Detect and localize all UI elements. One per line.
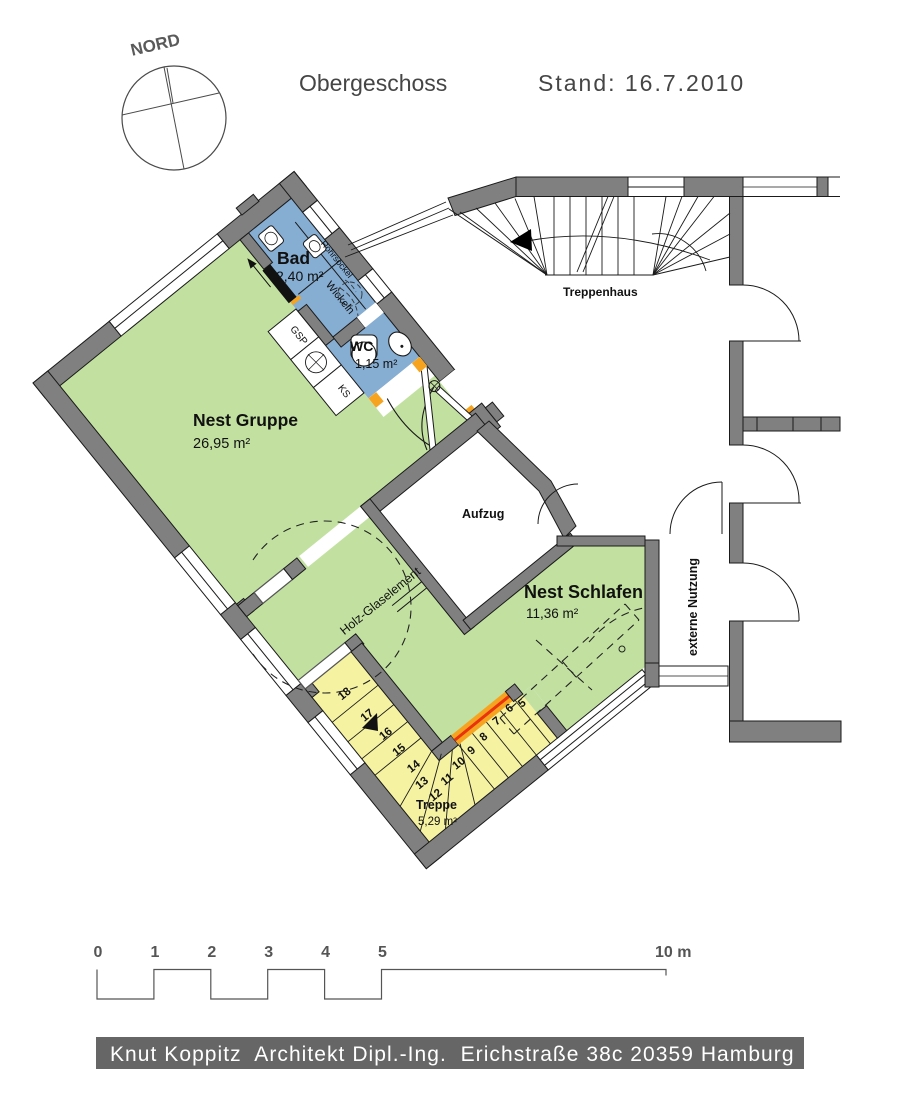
svg-text:Nest Schlafen: Nest Schlafen <box>524 582 643 602</box>
svg-text:Nest Gruppe: Nest Gruppe <box>193 410 298 430</box>
svg-text:10 m: 10 m <box>655 944 691 961</box>
svg-text:Stand: 16.7.2010: Stand: 16.7.2010 <box>538 70 745 96</box>
svg-text:26,95 m²: 26,95 m² <box>193 436 250 452</box>
svg-text:1: 1 <box>150 944 159 961</box>
svg-text:Treppenhaus: Treppenhaus <box>563 285 638 299</box>
svg-text:2,40 m²: 2,40 m² <box>276 268 324 284</box>
svg-text:WC: WC <box>350 338 373 354</box>
svg-text:4: 4 <box>321 944 330 961</box>
svg-text:5,29 m²: 5,29 m² <box>418 816 457 828</box>
svg-text:Obergeschoss: Obergeschoss <box>299 70 447 96</box>
svg-text:2: 2 <box>207 944 216 961</box>
svg-text:5: 5 <box>378 944 387 961</box>
svg-text:1,15 m²: 1,15 m² <box>355 357 397 371</box>
svg-text:Knut Koppitz Architekt Dipl.-: Knut Koppitz Architekt Dipl.-Ing. Erichs… <box>110 1043 795 1066</box>
svg-text:0: 0 <box>94 944 103 961</box>
svg-text:11,36 m²: 11,36 m² <box>526 606 579 621</box>
svg-text:3: 3 <box>264 944 273 961</box>
svg-text:Aufzug: Aufzug <box>462 507 504 521</box>
svg-text:externe Nutzung: externe Nutzung <box>686 558 700 656</box>
svg-text:Bad: Bad <box>277 248 310 268</box>
